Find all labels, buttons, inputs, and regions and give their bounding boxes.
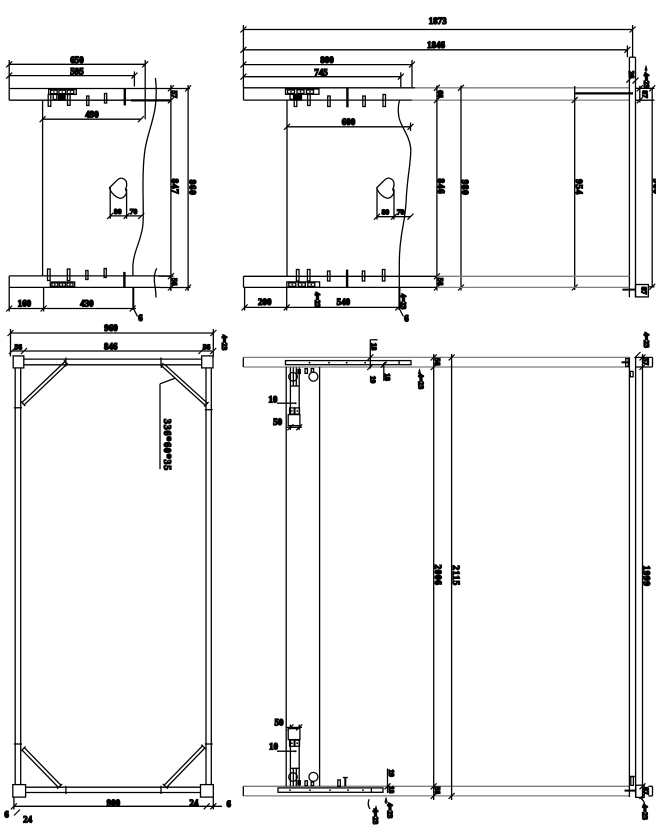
svg-text:6: 6: [138, 313, 143, 323]
svg-text:960: 960: [104, 323, 118, 333]
svg-text:336*60*35: 336*60*35: [161, 419, 172, 471]
svg-text:56: 56: [170, 278, 179, 286]
svg-text:860: 860: [186, 180, 196, 196]
svg-text:4=23: 4=23: [220, 335, 229, 351]
svg-text:2006: 2006: [432, 565, 442, 586]
svg-text:19: 19: [387, 769, 396, 777]
svg-text:24: 24: [23, 815, 33, 825]
svg-text:18: 18: [383, 373, 392, 381]
svg-text:847: 847: [169, 179, 179, 195]
svg-text:980: 980: [459, 180, 469, 196]
svg-text:50: 50: [275, 717, 285, 727]
svg-text:56: 56: [433, 358, 442, 366]
svg-text:4=23: 4=23: [642, 332, 651, 348]
svg-text:57: 57: [642, 358, 651, 366]
svg-text:6: 6: [226, 799, 231, 809]
svg-text:24: 24: [189, 798, 199, 808]
svg-text:18: 18: [387, 786, 396, 794]
svg-text:900: 900: [107, 798, 121, 808]
svg-text:200: 200: [258, 297, 272, 307]
svg-text:490: 490: [85, 110, 99, 120]
svg-text:960: 960: [650, 179, 656, 195]
svg-text:4=23: 4=23: [642, 73, 651, 89]
svg-text:56: 56: [436, 278, 445, 286]
svg-text:4=23: 4=23: [416, 373, 425, 389]
svg-text:87: 87: [642, 787, 651, 795]
svg-text:57: 57: [170, 91, 179, 99]
svg-text:600: 600: [342, 117, 356, 127]
svg-text:56: 56: [433, 787, 442, 795]
svg-text:56: 56: [203, 342, 211, 351]
svg-text:4=23: 4=23: [386, 803, 395, 819]
svg-text:10: 10: [268, 394, 278, 404]
svg-text:56: 56: [15, 342, 23, 351]
svg-text:954: 954: [573, 179, 583, 195]
svg-text:19: 19: [368, 376, 377, 384]
svg-text:50: 50: [273, 417, 283, 427]
svg-text:4=23: 4=23: [399, 294, 408, 310]
svg-text:70: 70: [397, 207, 405, 216]
svg-text:87: 87: [640, 287, 649, 295]
svg-text:595: 595: [70, 66, 84, 76]
svg-text:160: 160: [18, 298, 32, 308]
svg-text:800: 800: [320, 55, 334, 65]
svg-text:650: 650: [70, 55, 84, 65]
svg-text:846: 846: [104, 341, 118, 351]
svg-text:6: 6: [404, 314, 409, 324]
svg-text:1846: 1846: [427, 40, 446, 50]
svg-text:1999: 1999: [641, 566, 651, 587]
svg-text:70: 70: [130, 207, 138, 216]
svg-text:4=23: 4=23: [641, 804, 650, 820]
svg-text:4=23: 4=23: [313, 292, 322, 308]
svg-text:540: 540: [337, 297, 351, 307]
svg-text:66: 66: [436, 90, 445, 98]
svg-text:87: 87: [641, 90, 650, 98]
svg-text:80: 80: [114, 207, 122, 216]
svg-text:10: 10: [269, 742, 279, 752]
svg-text:846: 846: [435, 179, 445, 195]
svg-text:80: 80: [382, 207, 390, 216]
svg-text:1873: 1873: [429, 16, 448, 26]
svg-text:18: 18: [370, 343, 379, 351]
svg-text:6: 6: [4, 810, 9, 820]
svg-text:2115: 2115: [450, 565, 460, 585]
svg-text:4=23: 4=23: [371, 809, 380, 825]
svg-text:430: 430: [80, 298, 94, 308]
svg-text:745: 745: [314, 67, 328, 77]
